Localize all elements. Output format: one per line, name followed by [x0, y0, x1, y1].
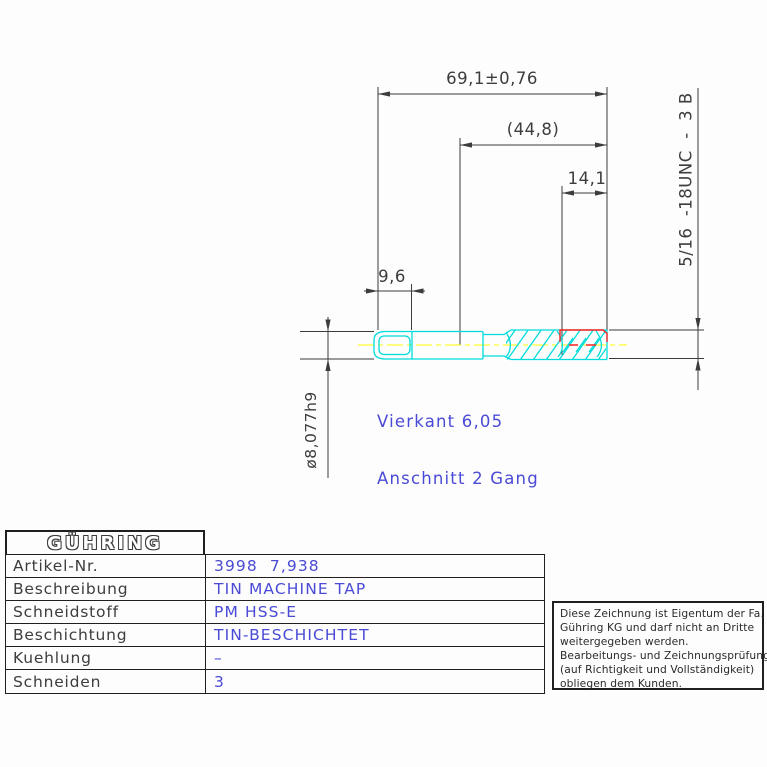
- table-row-kuehlung: Kuehlung –: [6, 647, 544, 670]
- technical-drawing-sheet: { "colors": { "accent": "#4a4ad6", "dimt…: [0, 0, 767, 767]
- disclaimer-line: weitergegeben werden.: [560, 635, 757, 649]
- dim-thread-length: 14,1: [552, 169, 622, 188]
- disclaimer-line: obliegen dem Kunden.: [560, 677, 757, 691]
- row-value: 3998 7,938: [206, 555, 544, 577]
- table-row-artikel: Artikel-Nr. 3998 7,938: [6, 555, 544, 578]
- disclaimer-box: Diese Zeichnung ist Eigentum der Fa. Güh…: [552, 601, 764, 690]
- table-row-schneidstoff: Schneidstoff PM HSS-E: [6, 601, 544, 624]
- row-label: Beschreibung: [6, 578, 206, 600]
- row-label: Kuehlung: [6, 647, 206, 669]
- row-label: Schneidstoff: [6, 601, 206, 623]
- row-value: 3: [206, 670, 544, 693]
- table-row-beschichtung: Beschichtung TIN-BESCHICHTET: [6, 624, 544, 647]
- dim-thread-spec: 5/16 -18UNC - 3 B: [677, 82, 696, 278]
- disclaimer-line: Diese Zeichnung ist Eigentum der Fa.: [560, 607, 757, 621]
- title-block-table: Artikel-Nr. 3998 7,938 Beschreibung TIN …: [5, 554, 545, 694]
- thread-highlight: [560, 330, 607, 342]
- brand-logo-box: GÜHRING: [5, 530, 205, 556]
- row-label: Schneiden: [6, 670, 206, 693]
- row-label: Artikel-Nr.: [6, 555, 206, 577]
- row-value: TIN MACHINE TAP: [206, 578, 544, 600]
- dim-total-length: 69,1±0,76: [427, 69, 557, 88]
- row-value: TIN-BESCHICHTET: [206, 624, 544, 646]
- disclaimer-line: Gühring KG und darf nicht an Dritte: [560, 621, 757, 635]
- dim-square-length: 9,6: [357, 267, 427, 286]
- disclaimer-line: (auf Richtigkeit und Vollständigkeit): [560, 663, 757, 677]
- table-row-beschreibung: Beschreibung TIN MACHINE TAP: [6, 578, 544, 601]
- row-label: Beschichtung: [6, 624, 206, 646]
- disclaimer-line: Bearbeitungs- und Zeichnungsprüfung: [560, 649, 757, 663]
- row-value: –: [206, 647, 544, 669]
- annotation-anschnitt: Anschnitt 2 Gang: [377, 469, 539, 488]
- brand-logo: GÜHRING: [47, 533, 163, 554]
- dim-ref-length: (44,8): [483, 120, 583, 139]
- dim-shank-diameter: ø8,077h9: [302, 375, 320, 485]
- table-row-schneiden: Schneiden 3: [6, 670, 544, 693]
- annotation-vierkant: Vierkant 6,05: [377, 412, 539, 431]
- tool-annotation: Vierkant 6,05 Anschnitt 2 Gang: [377, 374, 539, 507]
- row-value: PM HSS-E: [206, 601, 544, 623]
